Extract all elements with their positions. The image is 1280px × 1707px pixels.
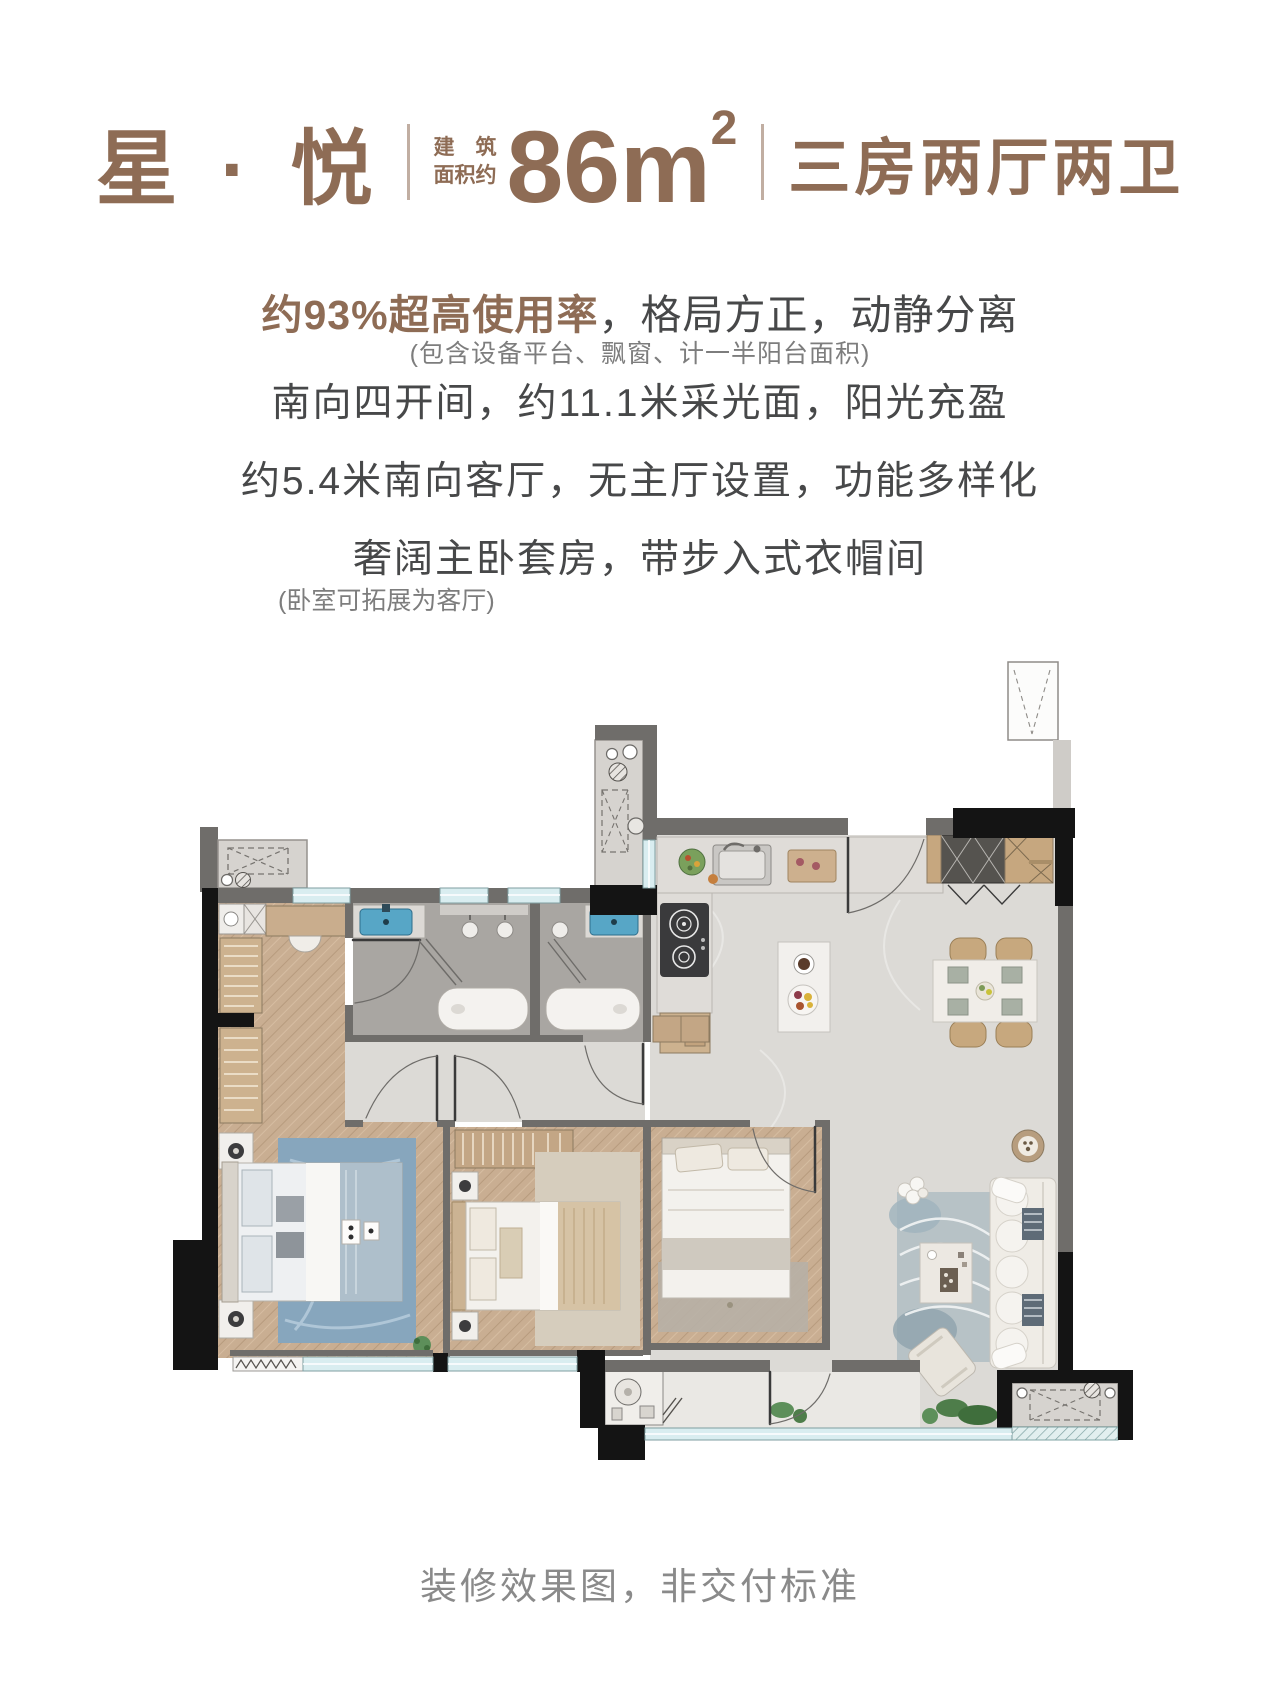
- pipe-icon: [236, 873, 251, 888]
- window-icon: [440, 888, 488, 903]
- tray-icon: [342, 1220, 360, 1244]
- chair-icon: [996, 1021, 1032, 1047]
- plant-icon: [922, 1408, 938, 1424]
- divider-line: [761, 124, 764, 200]
- dresser-counter: [266, 906, 350, 936]
- drain-icon: [1105, 1388, 1115, 1398]
- feature-usage-rate: 约93%超高使用率，格局方正，动静分离: [0, 281, 1280, 341]
- placemat: [948, 999, 968, 1015]
- drain-icon: [623, 745, 637, 759]
- bowl-icon: [708, 874, 718, 884]
- feature-master-suite: 奢阔主卧套房，带步入式衣帽间: [0, 528, 1280, 584]
- striped-pillow: [1022, 1294, 1044, 1326]
- layout-title: 三房两厅两卫: [788, 117, 1184, 207]
- window-icon: [303, 1357, 433, 1371]
- round-basin-icon: [552, 922, 568, 938]
- placemat: [1002, 999, 1022, 1015]
- disclaimer: 装修效果图，非交付标准: [0, 1556, 1280, 1610]
- chair-icon: [950, 1021, 986, 1047]
- bay-window-icon: [233, 1357, 303, 1371]
- round-basin-icon: [462, 922, 478, 938]
- area-block: 建 筑 面积约 86m2: [434, 105, 738, 218]
- equipment-platform-topleft: [200, 827, 307, 892]
- bedroom3-bed: [662, 1138, 790, 1298]
- bedroom2-bed: [452, 1202, 620, 1310]
- feature-note-bedroom: (卧室可拓展为客厅): [0, 581, 1280, 617]
- coffee-table-icon: [920, 1243, 972, 1303]
- fruit-plate-icon: [788, 985, 818, 1015]
- shoe-cabinet-icon: [927, 835, 1053, 883]
- equipment-platform-bottomright: [1012, 1382, 1118, 1440]
- window-icon: [643, 840, 655, 888]
- feature-highlight: 约93%超高使用率: [261, 292, 598, 338]
- stove-icon: [660, 903, 709, 977]
- feature-south-bays: 南向四开间，约11.1米采光面，阳光充盈: [0, 372, 1280, 428]
- feature-living-room: 约5.4米南向客厅，无主厅设置，功能多样化: [0, 450, 1280, 506]
- pipe-icon: [609, 763, 627, 781]
- column-icon: [628, 818, 644, 834]
- pipe-icon: [1084, 1382, 1100, 1398]
- mirror-strip: [440, 905, 528, 915]
- divider-line: [407, 124, 410, 200]
- area-label-line2: 面积约: [434, 162, 497, 189]
- window-icon: [645, 1428, 1012, 1440]
- plan-name: 星 · 悦: [96, 102, 383, 221]
- floor-plan: [118, 652, 1140, 1470]
- feature-note-area: (包含设备平台、飘窗、计一半阳台面积): [0, 334, 1280, 370]
- drain-icon: [1017, 1388, 1027, 1398]
- area-label: 建 筑 面积约: [434, 134, 497, 189]
- wardrobe-icon: [220, 1028, 262, 1123]
- header: 星 · 悦 建 筑 面积约 86m2 三房两厅两卫: [0, 102, 1280, 221]
- drain-icon: [607, 749, 618, 760]
- area-label-line1: 建 筑: [434, 134, 497, 161]
- wardrobe-icon: [220, 938, 262, 1013]
- round-basin-icon: [497, 922, 513, 938]
- window-icon: [293, 888, 350, 903]
- area-superscript: 2: [711, 102, 738, 155]
- veggie-bowl-icon: [679, 849, 705, 875]
- floorplan-poster: 星 · 悦 建 筑 面积约 86m2 三房两厅两卫 约93%超高使用率，格局方正…: [0, 0, 1280, 1707]
- area-value: 86m2: [507, 105, 738, 218]
- placemat: [1002, 967, 1022, 983]
- plant-icon: [770, 1402, 794, 1418]
- shaft-topright: [1008, 662, 1071, 810]
- placemat: [948, 967, 968, 983]
- drain-icon: [222, 875, 233, 886]
- striped-pillow: [1022, 1208, 1044, 1240]
- plant-icon: [958, 1405, 998, 1425]
- sofa-icon: [990, 1175, 1056, 1371]
- window-icon: [508, 888, 560, 903]
- window-icon: [448, 1357, 577, 1371]
- kitchen-island: [778, 942, 830, 1032]
